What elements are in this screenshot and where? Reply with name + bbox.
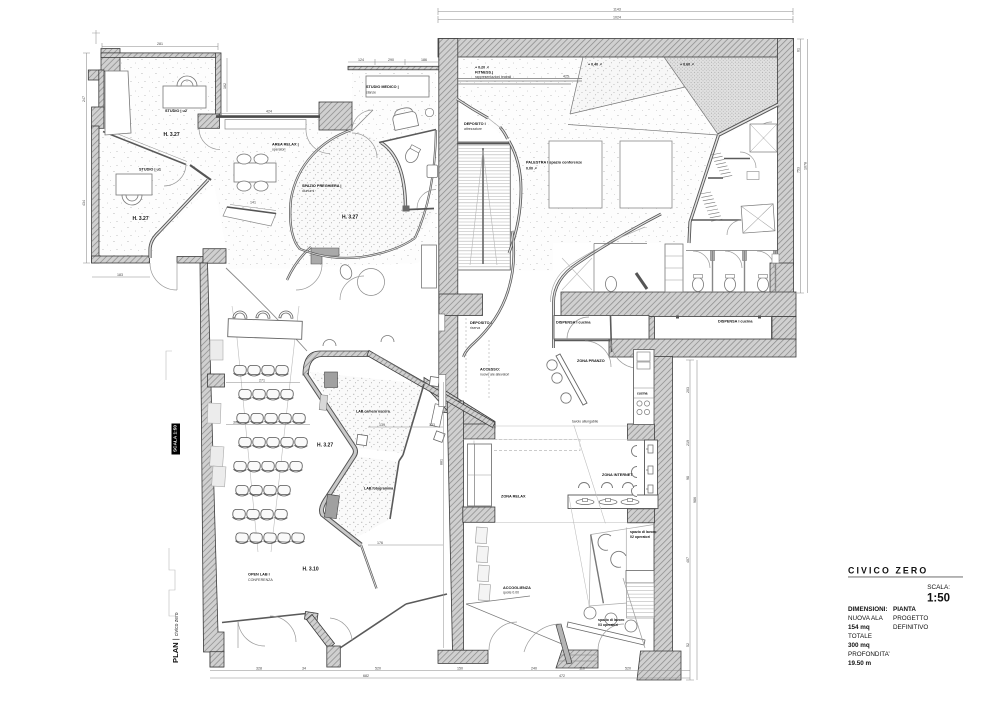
- svg-text:FITNESS |: FITNESS |: [475, 71, 493, 75]
- svg-text:682: 682: [363, 674, 369, 678]
- svg-text:247: 247: [82, 96, 86, 102]
- svg-text:1024: 1024: [613, 16, 621, 20]
- svg-text:DIMENSIONI:: DIMENSIONI:: [848, 606, 888, 613]
- svg-text:425: 425: [563, 75, 569, 79]
- svg-text:183: 183: [117, 273, 123, 277]
- svg-text:03 operatori: 03 operatori: [598, 623, 618, 627]
- svg-text:PALESTRA I spazio conferenze: PALESTRA I spazio conferenze: [526, 161, 582, 165]
- svg-text:quote 0.00: quote 0.00: [503, 591, 519, 595]
- svg-text:spazio di lavoro: spazio di lavoro: [630, 530, 656, 534]
- svg-text:CIVICO ZERO: CIVICO ZERO: [848, 566, 928, 576]
- svg-text:LAB.fotogramma: LAB.fotogramma: [364, 487, 394, 491]
- svg-text:H. 3.27: H. 3.27: [317, 443, 333, 449]
- svg-text:H. 3.27: H. 3.27: [342, 215, 358, 221]
- svg-text:240: 240: [531, 667, 537, 671]
- svg-text:STUDIO | u2: STUDIO | u2: [165, 109, 187, 113]
- svg-text:stanze: stanze: [366, 91, 376, 95]
- svg-text:nuove ale allevatori: nuove ale allevatori: [480, 373, 509, 377]
- svg-text:1078: 1078: [804, 162, 808, 170]
- svg-text:271: 271: [259, 379, 265, 383]
- svg-text:328: 328: [256, 667, 262, 671]
- svg-text:407: 407: [686, 557, 690, 563]
- svg-text:+ 0.60 ↗: + 0.60 ↗: [680, 63, 694, 67]
- svg-text:281: 281: [157, 42, 163, 46]
- svg-text:162: 162: [223, 83, 227, 89]
- svg-text:986: 986: [693, 497, 697, 503]
- svg-text:diurturni: diurturni: [302, 189, 314, 193]
- svg-text:154 mq: 154 mq: [848, 624, 870, 631]
- svg-text:SCALA:: SCALA:: [927, 584, 950, 591]
- svg-text:300 mq: 300 mq: [848, 642, 870, 649]
- svg-text:98: 98: [686, 476, 690, 480]
- svg-text:176: 176: [377, 541, 383, 545]
- svg-text:19.50 m: 19.50 m: [848, 660, 872, 667]
- svg-text:472: 472: [559, 674, 565, 678]
- svg-text:+ 0.20 ↗: + 0.20 ↗: [475, 66, 489, 70]
- svg-text:434: 434: [82, 200, 86, 206]
- svg-text:520: 520: [375, 667, 381, 671]
- svg-text:139: 139: [379, 423, 385, 427]
- svg-text:1:50: 1:50: [927, 593, 950, 605]
- svg-text:DISPENSA I cucina: DISPENSA I cucina: [556, 321, 591, 325]
- svg-text:+ 0.40 ↗: + 0.40 ↗: [588, 63, 602, 67]
- svg-text:0.00 ↗: 0.00 ↗: [526, 167, 537, 171]
- svg-text:rappresentazioni teatrali: rappresentazioni teatrali: [475, 75, 511, 79]
- svg-text:881: 881: [440, 459, 444, 465]
- svg-text:PROFONDITA’: PROFONDITA’: [848, 651, 890, 658]
- svg-text:DEPOSITO I: DEPOSITO I: [470, 321, 492, 325]
- svg-text:52: 52: [686, 643, 690, 647]
- svg-text:ZONA PRANZO: ZONA PRANZO: [577, 359, 605, 363]
- svg-text:attrezzature: attrezzature: [464, 127, 482, 131]
- svg-text:H. 3.10: H. 3.10: [303, 567, 319, 573]
- svg-text:ACCESSO:: ACCESSO:: [480, 368, 500, 372]
- svg-text:operatori: operatori: [272, 148, 286, 152]
- svg-text:CONFERENZA: CONFERENZA: [248, 578, 273, 582]
- svg-text:61: 61: [797, 48, 801, 52]
- svg-text:203: 203: [686, 387, 690, 393]
- svg-text:cucina: cucina: [637, 392, 648, 396]
- svg-text:PROGETTO: PROGETTO: [893, 615, 928, 622]
- svg-text:DEPOSITO I: DEPOSITO I: [464, 122, 486, 126]
- svg-text:H. 3.27: H. 3.27: [164, 132, 180, 138]
- svg-text:ACCOGLIENZA: ACCOGLIENZA: [503, 586, 531, 590]
- svg-text:tavolo allungabile: tavolo allungabile: [572, 420, 598, 424]
- svg-text:STUDIO MEDICO |: STUDIO MEDICO |: [366, 85, 399, 89]
- svg-text:PIANTA: PIANTA: [893, 606, 916, 613]
- svg-text:H. 3.27: H. 3.27: [133, 216, 149, 222]
- svg-text:ZONA RELAX: ZONA RELAX: [501, 495, 526, 499]
- svg-text:OPEN LAB I: OPEN LAB I: [248, 573, 270, 577]
- svg-text:DISPENSA I cucina: DISPENSA I cucina: [718, 320, 753, 324]
- svg-text:34: 34: [302, 667, 306, 671]
- svg-text:150: 150: [457, 667, 463, 671]
- svg-text:NUOVA ALA: NUOVA ALA: [848, 615, 884, 622]
- svg-text:520: 520: [625, 667, 631, 671]
- svg-text:riserva: riserva: [470, 326, 480, 330]
- svg-text:spazio di lavoro: spazio di lavoro: [598, 618, 624, 622]
- svg-text:424: 424: [266, 110, 272, 114]
- svg-text:ZONA INTERNET: ZONA INTERNET: [602, 473, 633, 477]
- svg-text:133: 133: [429, 423, 435, 427]
- svg-text:STUDIO | u1: STUDIO | u1: [139, 168, 161, 172]
- svg-text:141: 141: [250, 201, 256, 205]
- svg-text:TOTALE: TOTALE: [848, 633, 872, 640]
- svg-text:110: 110: [579, 667, 585, 671]
- svg-text:02 operatori: 02 operatori: [630, 535, 650, 539]
- svg-text:SCALA 1:50: SCALA 1:50: [173, 425, 178, 452]
- svg-text:219: 219: [686, 440, 690, 446]
- svg-text:124: 124: [358, 58, 364, 62]
- svg-text:186: 186: [421, 58, 427, 62]
- svg-text:1143: 1143: [613, 8, 621, 12]
- svg-text:LAB.camera oscura: LAB.camera oscura: [356, 410, 391, 414]
- svg-text:SPAZIO PREGHIERA |: SPAZIO PREGHIERA |: [302, 184, 341, 188]
- svg-text:753: 753: [797, 167, 801, 173]
- svg-text:290: 290: [388, 58, 394, 62]
- svg-text:AREA RELAX |: AREA RELAX |: [272, 143, 299, 147]
- svg-text:301: 301: [233, 421, 239, 425]
- svg-text:DEFINITIVO: DEFINITIVO: [893, 624, 928, 631]
